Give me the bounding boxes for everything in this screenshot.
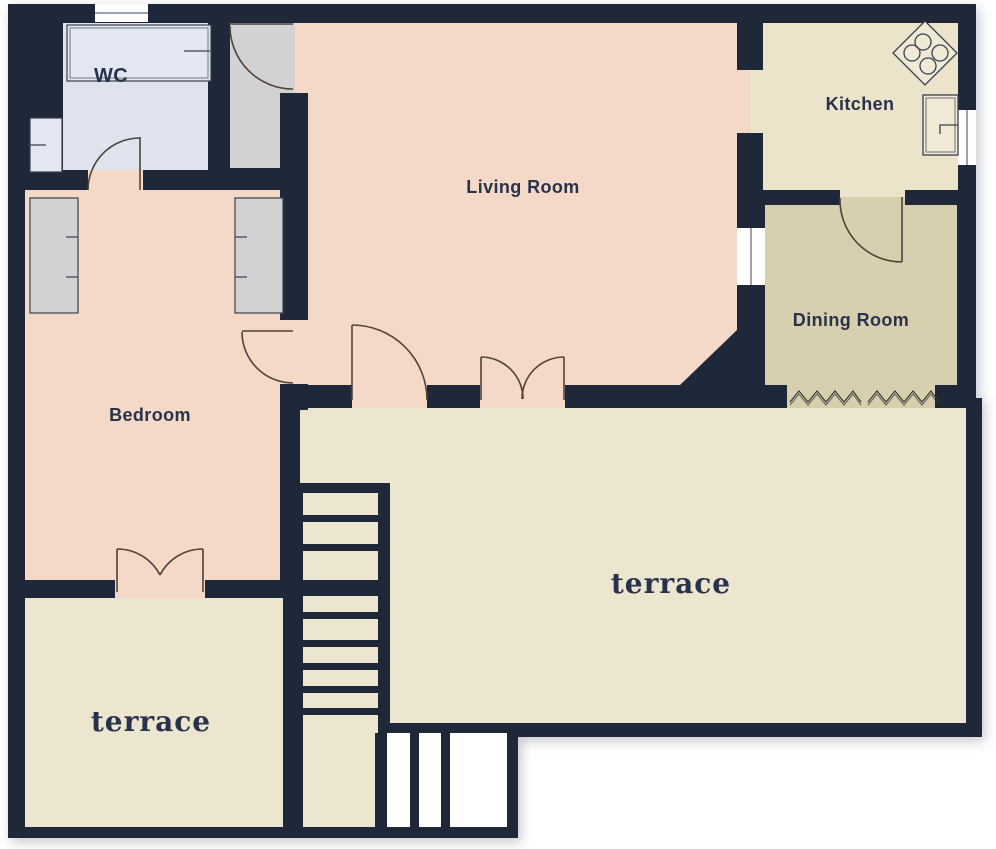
living-room-floor [295, 23, 737, 385]
wc-label: WC [94, 65, 128, 87]
stairs-lower-divider [375, 733, 387, 827]
stairs-wall-crossing [283, 580, 390, 596]
living-room-label: Living Room [466, 177, 579, 197]
stairs-lower-area [303, 733, 507, 827]
bedroom-label: Bedroom [109, 405, 191, 425]
stairs-left-rail [283, 483, 303, 740]
stairs-landing-floor [303, 737, 375, 827]
wc-counter-icon [67, 25, 211, 81]
wardrobe-right [235, 198, 283, 313]
kitchen-dining-door-opening-top [840, 190, 905, 198]
bedroom-french-door-opening [115, 580, 205, 598]
dining-room-label: Dining Room [793, 310, 909, 330]
kitchen-label: Kitchen [826, 94, 895, 114]
stair-tread [303, 515, 378, 522]
floor-plan: WC Living Room Kitchen Dining Room Bedro… [0, 0, 996, 849]
living-terrace-door-opening [352, 385, 427, 408]
bedroom-door-opening [280, 320, 308, 384]
terrace-left-label: terrace [91, 705, 211, 738]
kitchen-passage-kitchen-side [750, 70, 763, 133]
stair-tread [303, 686, 378, 693]
stairs-right-rail [378, 483, 390, 740]
wardrobe-left [30, 198, 78, 313]
stair-tread-vertical [410, 733, 419, 827]
kitchen-passage-living-side [737, 70, 750, 133]
wc-door-opening [88, 170, 143, 190]
dining-room-floor [765, 205, 957, 385]
terrace-main-label: terrace [611, 567, 731, 600]
stairs-upper-flight [283, 483, 390, 740]
stair-tread [303, 544, 378, 551]
stair-tread [303, 708, 378, 715]
stair-tread [303, 612, 378, 619]
terrace-main-floor [300, 408, 966, 723]
stair-tread [303, 640, 378, 647]
stair-tread-vertical [441, 733, 450, 827]
kitchen-dining-door-opening-bottom [840, 197, 905, 205]
stairs-top-edge [283, 483, 390, 493]
stair-tread [303, 663, 378, 670]
